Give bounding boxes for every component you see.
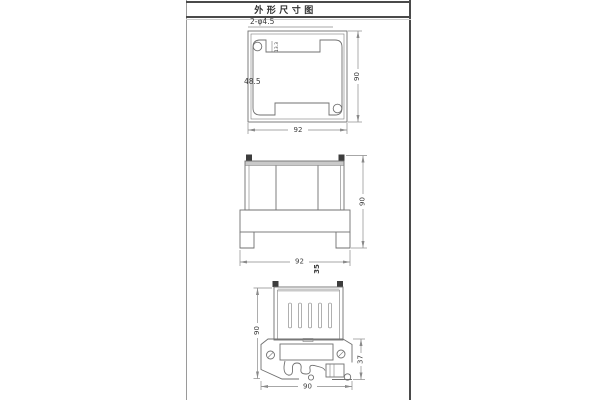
- side-terminal-left: [273, 281, 279, 287]
- side-height-dimension: 90: [253, 288, 272, 379]
- side-width-dimension: 90: [261, 381, 352, 391]
- front-top-shade: [245, 161, 344, 166]
- top-view-width-label: 92: [294, 126, 303, 134]
- rail-bracket-right-outline: [343, 339, 352, 363]
- front-terminal-right: [339, 155, 345, 162]
- side-terminal-right: [337, 281, 343, 287]
- drawing-sheet: 外形尺寸图 2-φ4.5 13.3 48.5: [0, 0, 600, 400]
- ventilation-slots: [289, 303, 332, 328]
- spring-clip: [284, 361, 325, 380]
- hole-callout-label: 2-φ4.5: [250, 17, 275, 26]
- front-terminal-left: [246, 155, 252, 162]
- front-width-dimension: 92: [240, 250, 350, 266]
- drawing-canvas: 2-φ4.5 13.3 48.5 90: [0, 0, 600, 400]
- din-rail-section: [280, 344, 333, 360]
- top-view-height-dimension: 90: [348, 31, 362, 122]
- slot-width-label: 48.5: [244, 77, 261, 86]
- front-base-slab: [240, 210, 350, 232]
- latch: [326, 364, 352, 380]
- top-view-plate: [253, 40, 342, 115]
- screw-left: [267, 351, 275, 359]
- side-height-label: 90: [253, 326, 261, 335]
- side-view: 90 37 90: [253, 281, 365, 391]
- front-body-outline: [245, 161, 344, 210]
- top-view-outer-outline: [248, 31, 347, 122]
- rail-section-dimension: 37: [353, 339, 365, 380]
- rail-section-label: 37: [357, 355, 365, 364]
- side-width-label: 90: [303, 383, 312, 391]
- front-height-label: 90: [359, 197, 367, 206]
- notch-depth-label: 13.3: [274, 42, 280, 52]
- top-view-height-label: 90: [353, 72, 361, 81]
- front-width-label: 92: [295, 258, 304, 266]
- screw-right: [337, 350, 345, 358]
- front-view: 92 90 35: [240, 155, 367, 274]
- front-base-feet: [240, 232, 350, 248]
- front-height-dimension: 90: [346, 156, 367, 249]
- top-view: 2-φ4.5 13.3 48.5 90: [244, 17, 362, 134]
- top-view-inner-outline: [251, 34, 344, 119]
- mounting-hole-top-left: [253, 42, 262, 51]
- front-depth-label: 35: [313, 264, 321, 274]
- top-view-width-dimension: 92: [248, 123, 347, 134]
- mounting-hole-bottom-right: [333, 104, 342, 113]
